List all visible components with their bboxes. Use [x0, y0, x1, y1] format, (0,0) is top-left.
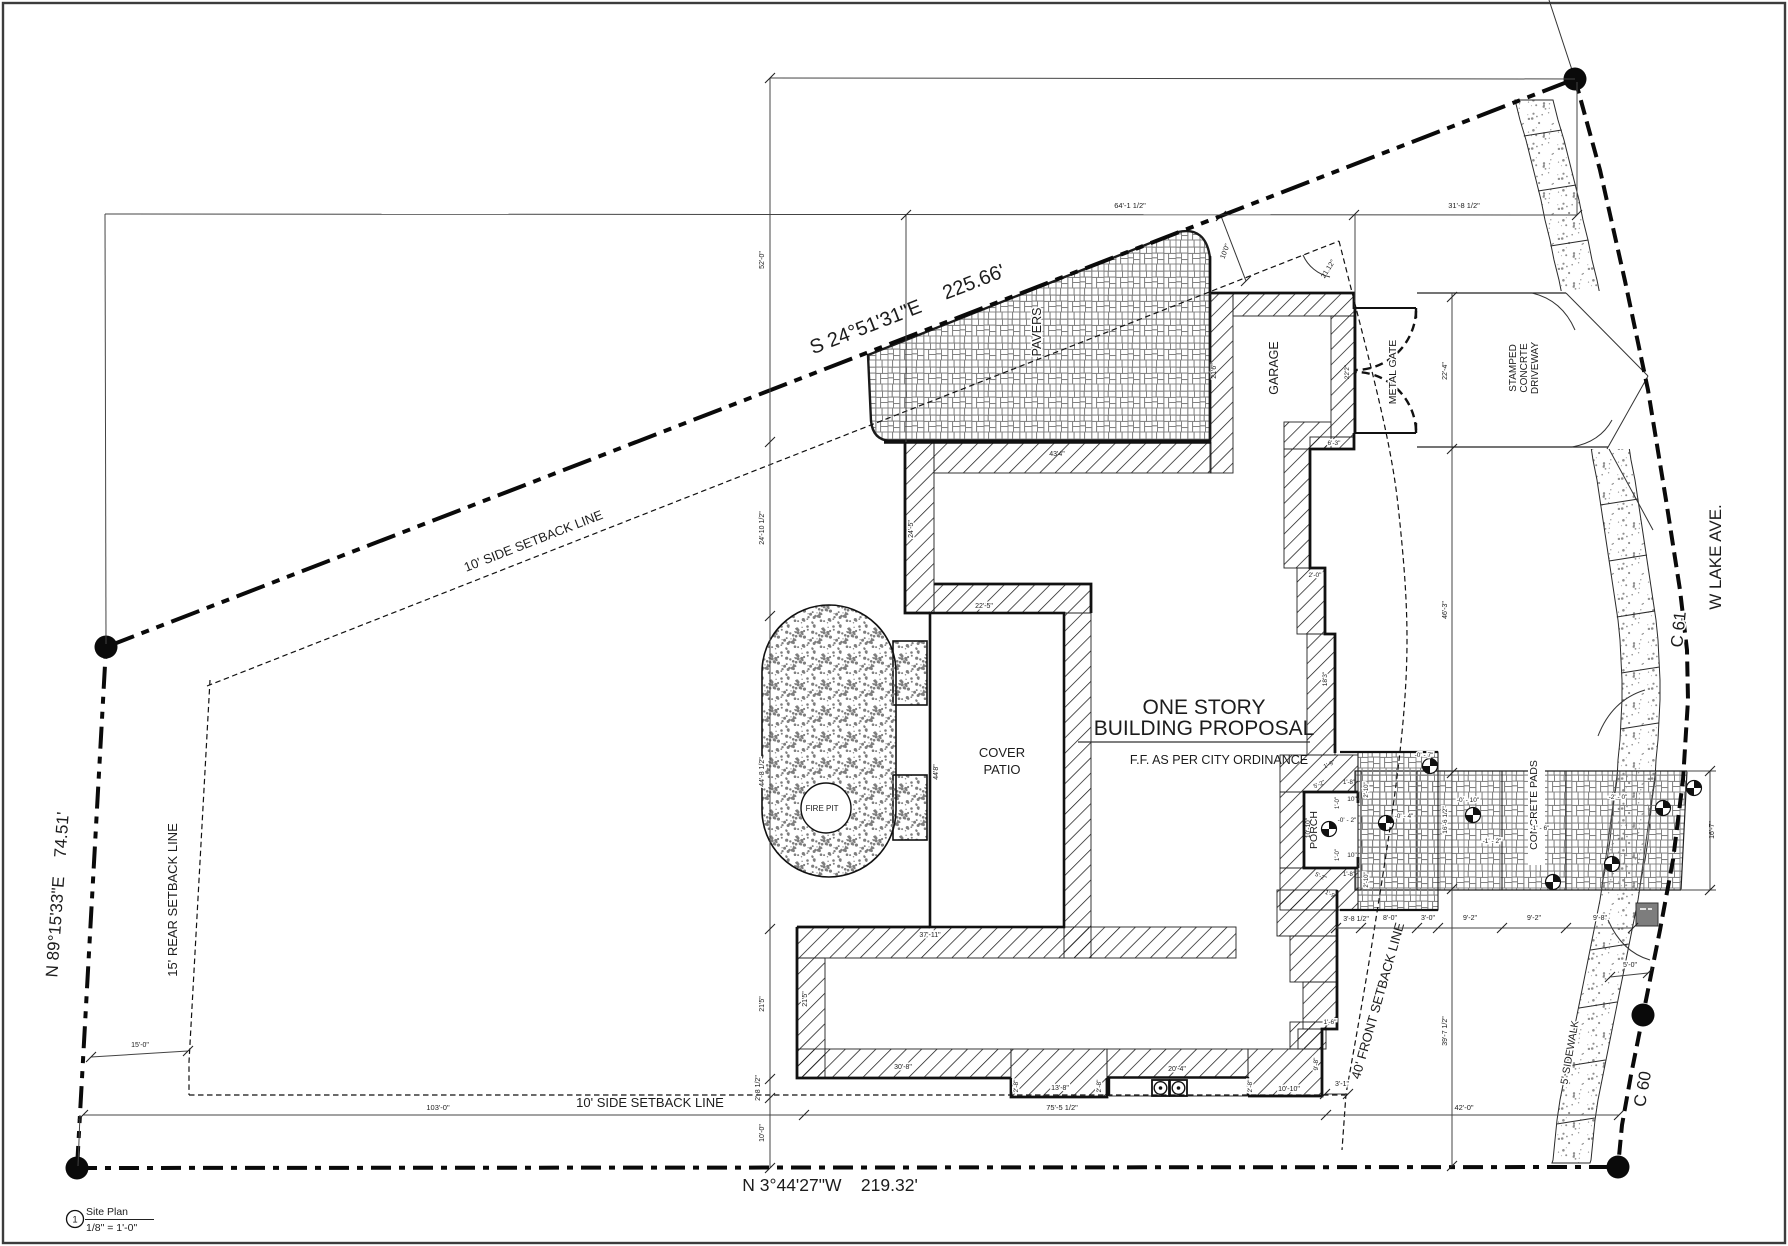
svg-text:-0' - 7": -0' - 7" [1415, 752, 1434, 759]
svg-text:3'-8 1/2": 3'-8 1/2" [1343, 916, 1369, 923]
svg-text:10'-10": 10'-10" [1278, 1086, 1300, 1093]
svg-text:9'-2": 9'-2" [1527, 915, 1541, 922]
svg-text:75'-5 1/2": 75'-5 1/2" [1046, 1103, 1078, 1112]
svg-text:Site Plan: Site Plan [86, 1206, 128, 1218]
svg-text:64'-1 1/2": 64'-1 1/2" [1114, 201, 1146, 210]
svg-text:5'-0": 5'-0" [1623, 962, 1637, 969]
svg-text:18'3": 18'3" [1322, 671, 1329, 686]
svg-text:-0' - 4": -0' - 4" [1395, 813, 1414, 820]
svg-text:1/8" = 1'-0": 1/8" = 1'-0" [86, 1222, 137, 1234]
svg-text:52'-0": 52'-0" [759, 251, 766, 269]
svg-text:1: 1 [72, 1215, 77, 1226]
svg-text:9'-8": 9'-8" [1313, 1057, 1320, 1071]
svg-text:CONCRETE PADS: CONCRETE PADS [1528, 760, 1540, 850]
svg-text:21'5": 21'5" [802, 991, 809, 1007]
svg-text:16'-7": 16'-7" [1709, 821, 1716, 839]
svg-text:39'-7 1/2": 39'-7 1/2" [1442, 1016, 1449, 1046]
svg-text:6'-3": 6'-3" [1328, 440, 1342, 447]
svg-text:46'-3": 46'-3" [1442, 601, 1449, 619]
svg-text:STAMPED: STAMPED [1508, 344, 1519, 392]
svg-text:24'-10 1/2": 24'-10 1/2" [759, 511, 766, 545]
svg-text:22'-5": 22'-5" [975, 603, 993, 610]
svg-text:-0' - 10": -0' - 10" [1457, 797, 1480, 804]
svg-text:30'-8": 30'-8" [894, 1064, 912, 1071]
svg-text:1'-0": 1'-0" [1335, 849, 1341, 861]
svg-text:2'-8 1/2": 2'-8 1/2" [755, 1075, 762, 1101]
svg-text:ONE STORY: ONE STORY [1143, 696, 1266, 719]
svg-text:-1' - 6": -1' - 6" [1531, 825, 1550, 832]
svg-text:2'-10": 2'-10" [1364, 872, 1370, 887]
svg-text:BUILDING PROPOSAL: BUILDING PROPOSAL [1094, 717, 1315, 740]
svg-text:103'-0": 103'-0" [426, 1103, 450, 1112]
svg-text:20'-4": 20'-4" [1168, 1066, 1186, 1073]
svg-text:W LAKE AVE.: W LAKE AVE. [1706, 504, 1725, 610]
svg-text:8'-0": 8'-0" [1383, 915, 1397, 922]
svg-text:COVER: COVER [979, 745, 1025, 760]
svg-text:-1' - 2": -1' - 2" [1483, 838, 1502, 845]
svg-text:44'-8 1/2": 44'-8 1/2" [759, 757, 766, 787]
svg-text:CONCRTEDRIVEWAY: CONCRTEDRIVEWAY [1519, 342, 1541, 395]
svg-text:21'5": 21'5" [759, 996, 766, 1012]
svg-text:1'-0": 1'-0" [1335, 797, 1341, 809]
svg-text:2'-10": 2'-10" [1364, 782, 1370, 797]
svg-text:1'-8": 1'-8" [1343, 780, 1355, 786]
svg-text:44'8": 44'8" [933, 764, 940, 780]
svg-text:1'-8": 1'-8" [1343, 872, 1355, 878]
svg-text:2'-8": 2'-8" [1247, 1079, 1254, 1093]
svg-text:2'-8": 2'-8" [1013, 1079, 1020, 1093]
svg-text:3'-0": 3'-0" [1421, 915, 1435, 922]
svg-text:GARAGE: GARAGE [1267, 341, 1281, 395]
svg-text:-0' - 2": -0' - 2" [1338, 817, 1357, 824]
svg-text:15' REAR SETBACK LINE: 15' REAR SETBACK LINE [165, 823, 180, 977]
svg-text:C 61: C 61 [1667, 611, 1690, 649]
svg-text:10' SIDE SETBACK LINE: 10' SIDE SETBACK LINE [576, 1095, 724, 1110]
svg-text:42'-0": 42'-0" [1454, 1103, 1473, 1112]
svg-text:31'-8 1/2": 31'-8 1/2" [1448, 201, 1480, 210]
svg-text:10": 10" [1347, 852, 1357, 859]
svg-text:N 3°44'27"W 219.32': N 3°44'27"W 219.32' [742, 1175, 918, 1195]
svg-text:10": 10" [1347, 796, 1357, 803]
svg-text:22'-4": 22'-4" [1442, 362, 1449, 380]
svg-text:24'-5": 24'-5" [908, 520, 915, 538]
svg-text:FIRE PIT: FIRE PIT [806, 804, 839, 813]
svg-text:PATIO: PATIO [983, 762, 1020, 777]
svg-text:9'-2": 9'-2" [1463, 915, 1477, 922]
svg-text:METAL GATE: METAL GATE [1387, 340, 1399, 405]
svg-text:16'-6 1/2": 16'-6 1/2" [1442, 806, 1449, 834]
svg-text:9'-8": 9'-8" [1593, 915, 1607, 922]
svg-text:2'-0": 2'-0" [1309, 572, 1323, 579]
svg-text:22'2": 22'2" [1344, 364, 1351, 379]
svg-text:1'-6": 1'-6" [1324, 1019, 1338, 1026]
svg-text:-2' - 0": -2' - 0" [1609, 794, 1628, 801]
svg-text:37'-11": 37'-11" [919, 932, 941, 939]
svg-text:15'-0": 15'-0" [131, 1042, 149, 1049]
svg-text:13'-8": 13'-8" [1051, 1085, 1069, 1092]
svg-text:3'-1": 3'-1" [1335, 1081, 1349, 1088]
svg-text:2'-8": 2'-8" [1096, 1079, 1103, 1093]
svg-text:PAVERS: PAVERS [1030, 308, 1044, 357]
svg-text:10'-10": 10'-10" [1305, 817, 1312, 838]
svg-text:10'-0": 10'-0" [759, 1124, 766, 1142]
svg-text:F.F. AS PER CITY ORDINANCE: F.F. AS PER CITY ORDINANCE [1130, 753, 1308, 767]
